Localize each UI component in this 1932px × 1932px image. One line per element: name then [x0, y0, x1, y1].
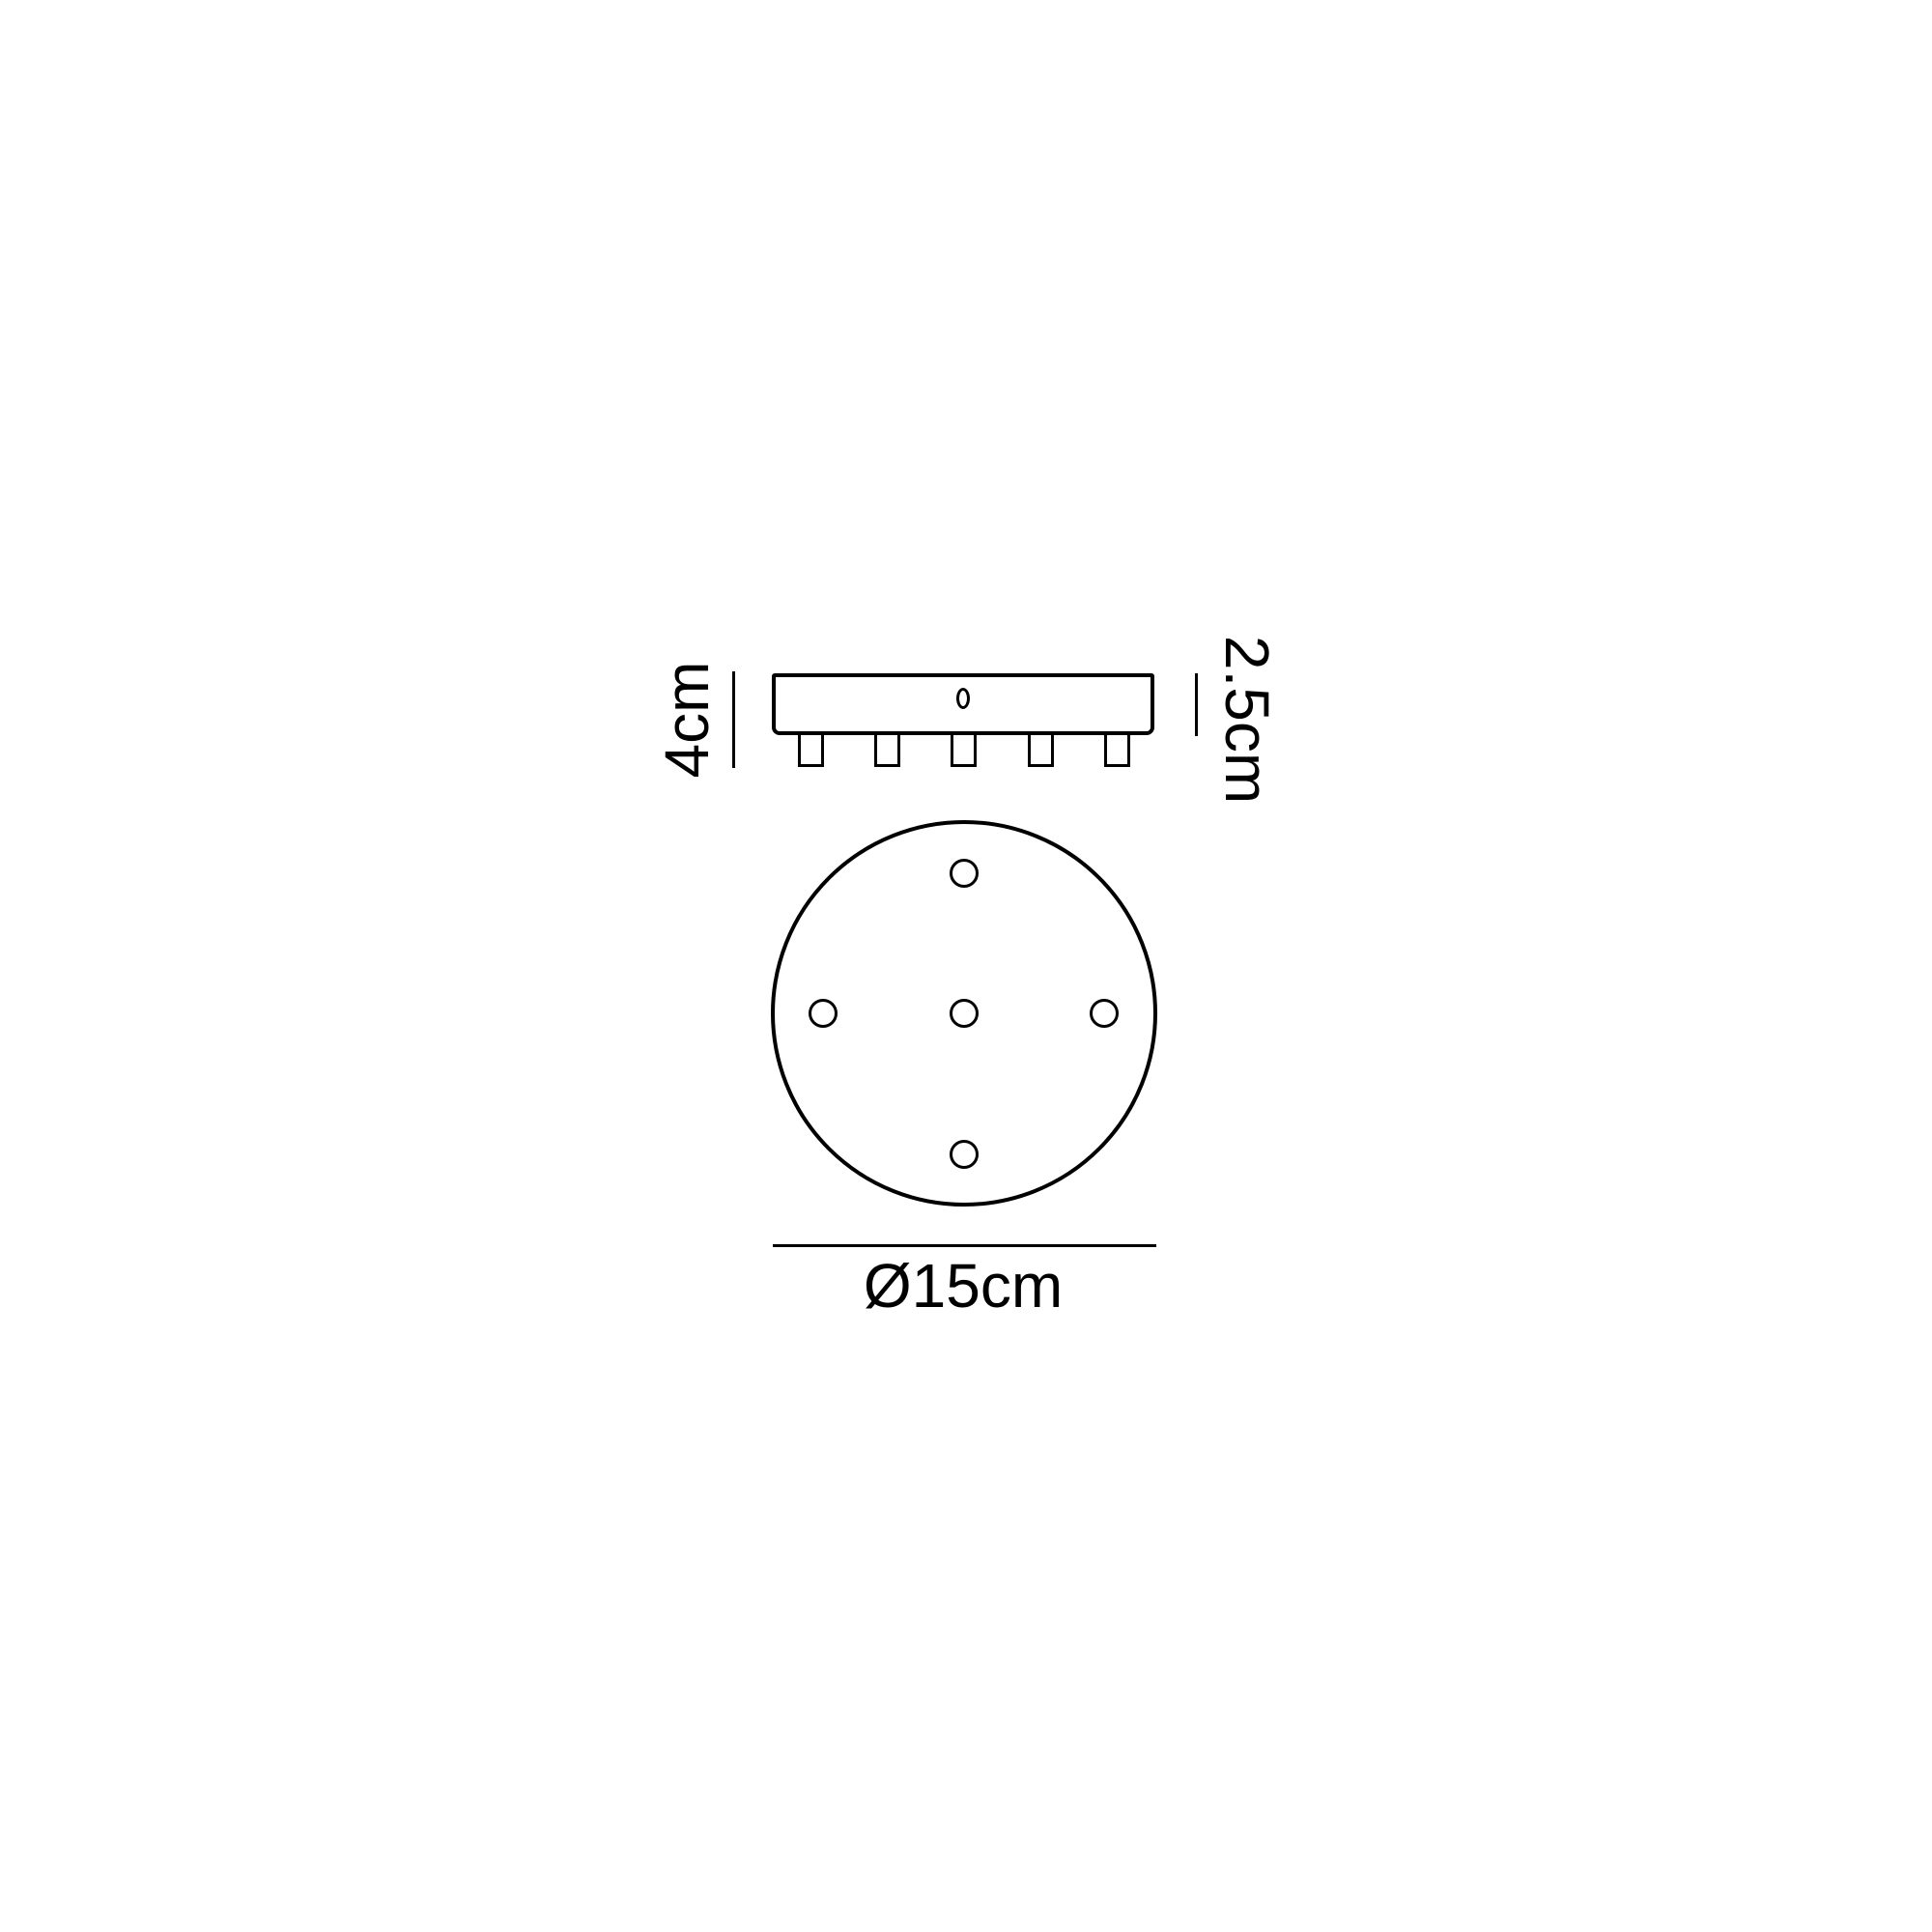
- top-hole: [950, 859, 979, 888]
- center-hole: [950, 999, 979, 1028]
- left-hole: [809, 999, 838, 1028]
- right-hole: [1090, 999, 1119, 1028]
- diameter-dimension-line: [773, 1244, 1156, 1247]
- top-view: Ø15cm: [0, 0, 1932, 1932]
- drawing-canvas: 4cm 2.5cm Ø15cm: [0, 0, 1932, 1932]
- bottom-hole: [950, 1140, 979, 1169]
- diameter-label: Ø15cm: [770, 1252, 1156, 1320]
